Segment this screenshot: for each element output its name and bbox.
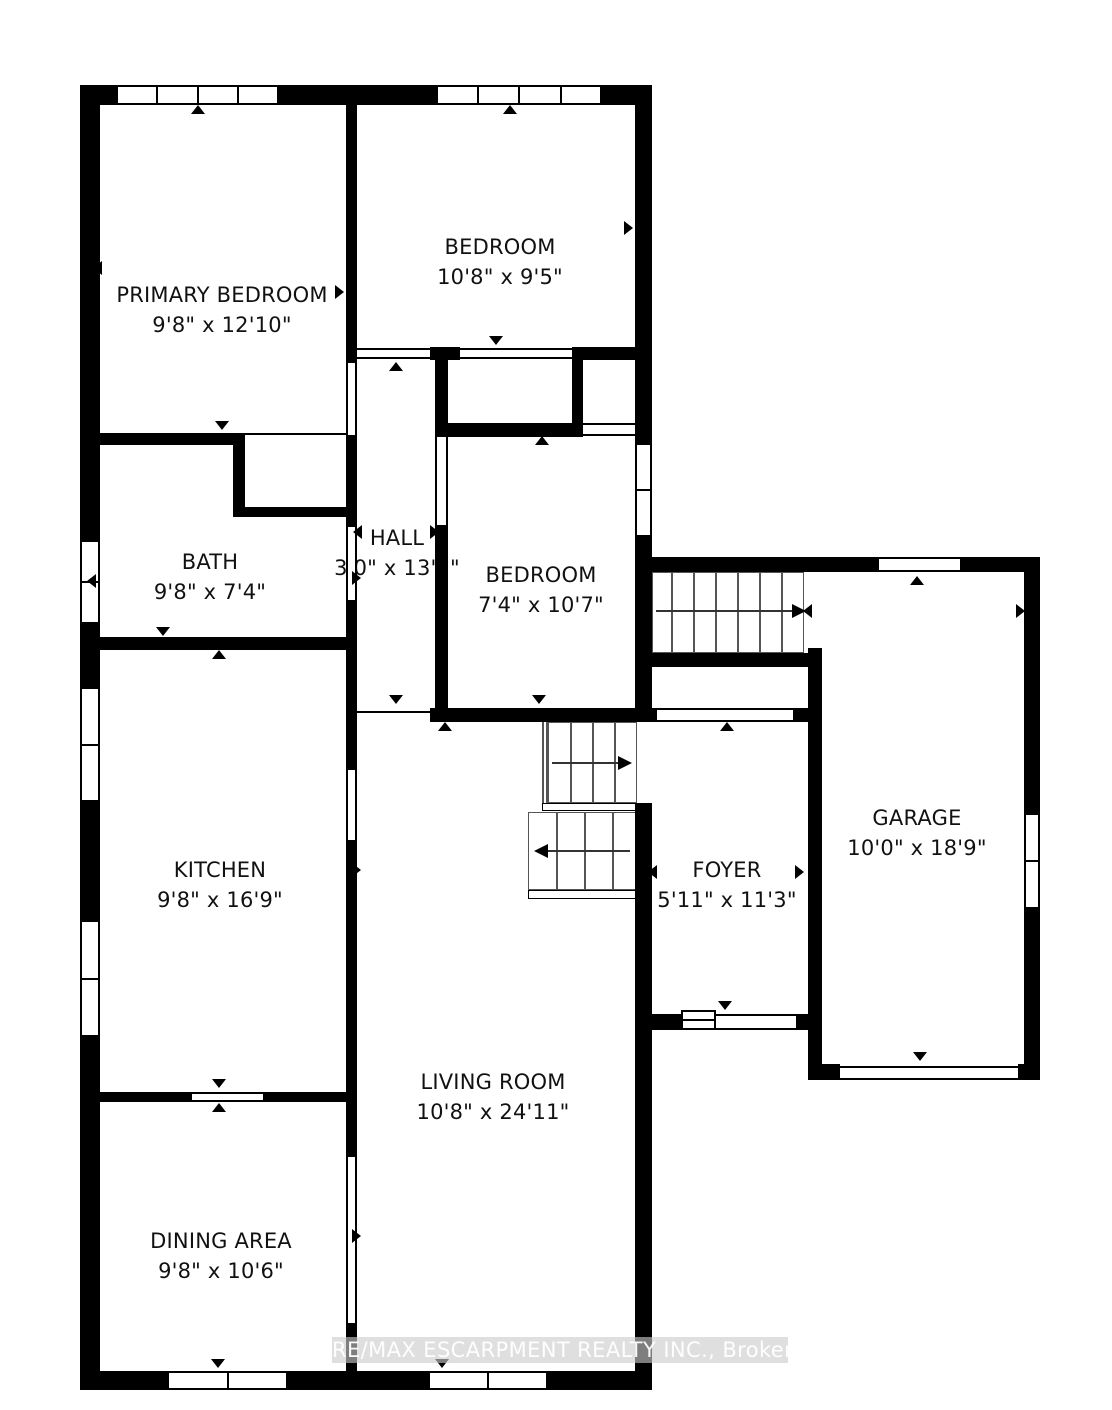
direction-marker [87, 1229, 96, 1243]
direction-marker [335, 285, 344, 299]
entry-stairs-up-arrow [656, 610, 792, 612]
entry-stairs-tread [693, 573, 695, 652]
door-opening-bedroom-south [435, 437, 448, 525]
room-name: BEDROOM [478, 560, 604, 590]
front-door [681, 1010, 716, 1030]
room-dims: 7'4" x 10'7" [478, 590, 604, 620]
basement-upper-arrow-head [618, 756, 632, 770]
wall-segment [435, 525, 448, 710]
direction-marker [489, 336, 503, 345]
door-opening-bedroom-north-hall [357, 348, 430, 359]
wall-segment [572, 347, 652, 360]
direction-marker [624, 221, 633, 235]
direction-marker [212, 1079, 226, 1088]
direction-marker [352, 1229, 361, 1243]
room-dims: 10'8" x 24'11" [417, 1097, 570, 1127]
direction-marker [93, 261, 102, 275]
direction-marker [353, 525, 362, 539]
basement-lower-arrow [548, 850, 630, 852]
room-name: LIVING ROOM [417, 1067, 570, 1097]
basement-stairs-landing [542, 803, 637, 811]
direction-marker [389, 362, 403, 371]
window-bedroom-north-mullion [518, 87, 520, 103]
basement-stairs-edge [528, 890, 649, 899]
front-entry-opening [716, 1014, 796, 1030]
wall-segment [635, 803, 652, 1390]
room-dims: 9'8" x 12'10" [116, 310, 327, 340]
room-dims: 9'8" x 16'9" [157, 885, 283, 915]
direction-marker [211, 1359, 225, 1368]
room-name: PRIMARY BEDROOM [116, 280, 327, 310]
wall-segment [635, 557, 879, 572]
direction-marker [438, 722, 452, 731]
window-bedroom-north-mullion [560, 87, 562, 103]
room-dims: 10'0" x 18'9" [847, 833, 986, 863]
window-garage-mullion [1026, 860, 1038, 862]
door-opening-kitchen-living [346, 770, 357, 840]
basement-stairs-side-line [546, 722, 548, 803]
wall-segment [80, 1092, 192, 1102]
room-name: FOYER [657, 855, 796, 885]
room-dims: 9'8" x 7'4" [154, 577, 266, 607]
direction-marker [156, 627, 170, 636]
window-primary-bedroom-mullion [156, 87, 158, 103]
door-opening-primary-bedroom [346, 363, 357, 435]
wall-segment [346, 840, 357, 1102]
direction-marker [352, 863, 361, 877]
room-name: KITCHEN [157, 855, 283, 885]
wall-segment [80, 637, 357, 650]
wall-segment [808, 1064, 840, 1080]
wall-segment [80, 1371, 652, 1390]
window-kitchen-2-mullion [82, 978, 98, 980]
wall-segment [346, 1102, 357, 1157]
room-label-bath: BATH 9'8" x 7'4" [154, 547, 266, 607]
direction-marker [430, 525, 439, 539]
direction-marker [718, 1001, 732, 1010]
direction-marker [87, 863, 96, 877]
room-dims: 9'8" x 10'6" [150, 1256, 292, 1286]
wall-segment [635, 1014, 681, 1030]
room-dims: 5'11" x 11'3" [657, 885, 796, 915]
wall-segment [635, 85, 652, 720]
wall-segment [435, 423, 583, 437]
wall-segment [263, 1092, 357, 1102]
window-kitchen-1-mullion [82, 744, 98, 746]
direction-marker [910, 576, 924, 585]
room-name: BATH [154, 547, 266, 577]
room-label-bedroom-north: BEDROOM 10'8" x 9'5" [437, 232, 563, 292]
room-label-foyer: FOYER 5'11" x 11'3" [657, 855, 796, 915]
window-living-room-mullion [487, 1373, 489, 1388]
room-name: BEDROOM [437, 232, 563, 262]
front-door-panel [683, 1019, 714, 1021]
closet-opening-primary-bedroom [245, 433, 346, 443]
basement-stairs-side-line [542, 722, 544, 803]
entry-stairs-tread [759, 573, 761, 652]
direction-marker [352, 571, 361, 585]
window-primary-bedroom-mullion [197, 87, 199, 103]
direction-marker [803, 604, 812, 618]
direction-marker [191, 105, 205, 114]
entry-stairs-tread [781, 573, 783, 652]
direction-marker [1016, 604, 1025, 618]
direction-marker [215, 421, 229, 430]
room-name: GARAGE [847, 803, 986, 833]
door-opening-bedroom-north-closet [460, 348, 572, 359]
window-bedroom-north-mullion [477, 87, 479, 103]
direction-marker [535, 436, 549, 445]
entry-stairs-tread [737, 573, 739, 652]
wall-segment [346, 85, 357, 363]
direction-marker [638, 1126, 647, 1140]
direction-marker [212, 650, 226, 659]
closet-opening-bedroom-south [583, 423, 635, 436]
direction-marker [648, 865, 657, 879]
wall-segment [649, 653, 822, 667]
direction-marker [532, 695, 546, 704]
direction-marker [913, 1052, 927, 1061]
room-label-bedroom-south: BEDROOM 7'4" x 10'7" [478, 560, 604, 620]
entry-stairs-tread [671, 573, 673, 652]
door-opening-garage-rear [879, 557, 960, 572]
opening-foyer-landing [657, 708, 793, 722]
direction-marker [212, 1103, 226, 1112]
basement-lower-arrow-head [534, 844, 548, 858]
wall-segment [346, 650, 357, 770]
wall-segment [233, 507, 346, 517]
opening-kitchen-dining [192, 1092, 263, 1102]
window-primary-bedroom-mullion [237, 87, 239, 103]
wall-segment [80, 433, 245, 445]
wall-segment [430, 708, 657, 722]
room-label-primary-bedroom: PRIMARY BEDROOM 9'8" x 12'10" [116, 280, 327, 340]
wall-segment [808, 648, 822, 1064]
direction-marker [720, 722, 734, 731]
room-label-living-room: LIVING ROOM 10'8" x 24'11" [417, 1067, 570, 1127]
entry-stairs-tread [715, 573, 717, 652]
window-dining-area-mullion [227, 1373, 229, 1388]
direction-marker [389, 695, 403, 704]
basement-upper-arrow [552, 762, 618, 764]
room-name: DINING AREA [150, 1226, 292, 1256]
direction-marker [87, 574, 96, 588]
room-label-garage: GARAGE 10'0" x 18'9" [847, 803, 986, 863]
room-label-dining-area: DINING AREA 9'8" x 10'6" [150, 1226, 292, 1286]
wall-segment [346, 435, 357, 527]
direction-marker [795, 865, 804, 879]
floor-plan: PRIMARY BEDROOM 9'8" x 12'10" BEDROOM 10… [0, 0, 1112, 1410]
threshold-hall-living [357, 711, 430, 713]
wall-segment [796, 1014, 822, 1030]
window-bedroom-south-mullion [637, 489, 650, 491]
direction-marker [503, 105, 517, 114]
room-label-kitchen: KITCHEN 9'8" x 16'9" [157, 855, 283, 915]
room-dims: 10'8" x 9'5" [437, 262, 563, 292]
brokerage-watermark: RE/MAX ESCARPMENT REALTY INC., Brokerage [332, 1337, 788, 1363]
garage-door-opening [840, 1066, 1018, 1080]
